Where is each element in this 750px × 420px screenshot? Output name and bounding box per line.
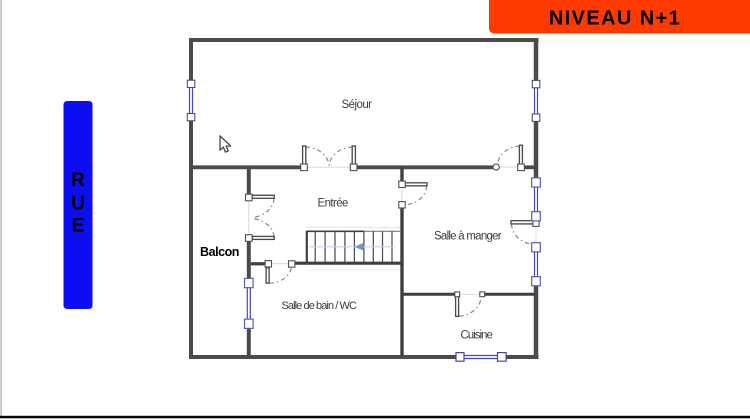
svg-text:Salle à manger: Salle à manger bbox=[434, 230, 502, 242]
svg-text:Salle de bain / WC: Salle de bain / WC bbox=[282, 300, 358, 312]
svg-text:Cuisine: Cuisine bbox=[461, 330, 493, 342]
svg-text:Balcon: Balcon bbox=[200, 245, 239, 259]
svg-text:Entrée: Entrée bbox=[318, 198, 348, 210]
svg-text:U: U bbox=[71, 194, 85, 215]
svg-text:R: R bbox=[71, 170, 85, 191]
svg-text:E: E bbox=[72, 216, 85, 237]
svg-text:NIVEAU N+1: NIVEAU N+1 bbox=[549, 8, 681, 30]
svg-text:Séjour: Séjour bbox=[342, 99, 373, 111]
